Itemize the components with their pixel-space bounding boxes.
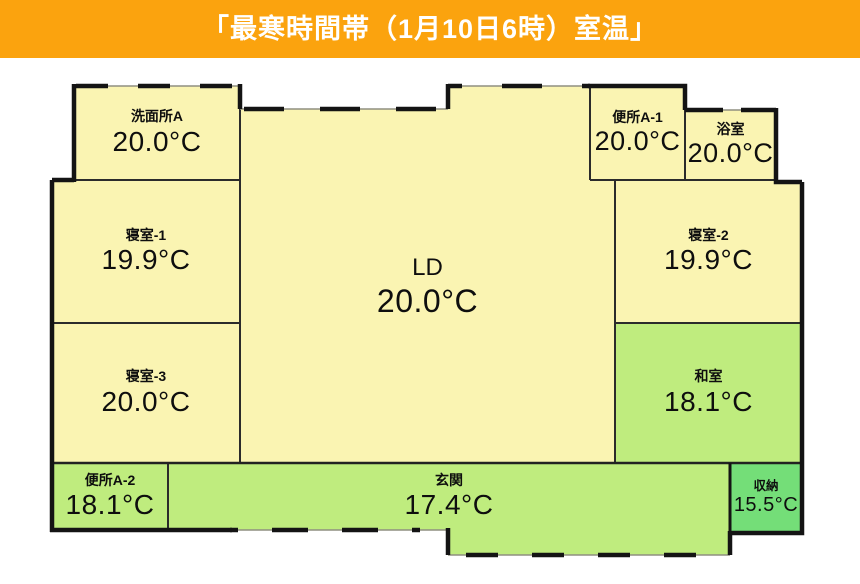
- room-fill-japanese-room: [615, 323, 802, 463]
- screenshot-canvas: 「最寒時間帯（1月10日6時）室温」 洗面所A 20.0°C 寝室-1 19.9…: [0, 0, 860, 584]
- room-fill-storage: [730, 463, 802, 533]
- room-fill-toilet-a2: [52, 463, 168, 530]
- floorplan: [0, 0, 860, 584]
